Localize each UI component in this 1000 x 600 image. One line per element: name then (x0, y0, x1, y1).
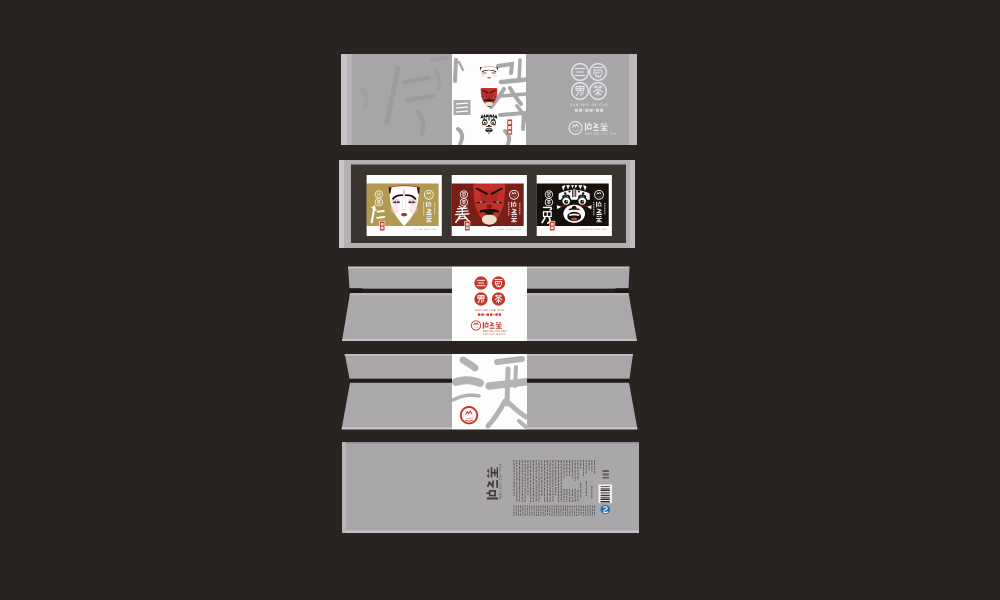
svg-text:SAN GUO MASKS: SAN GUO MASKS (483, 333, 506, 336)
svg-text:WEI ZHI CUI TEA: WEI ZHI CUI TEA (499, 463, 503, 499)
svg-text:ZHANG FEI FACE TEA: ZHANG FEI FACE TEA (580, 228, 607, 231)
svg-text:LIU BEI FACE TEA: LIU BEI FACE TEA (414, 228, 436, 231)
svg-text:SAN SHU JIE CHA: SAN SHU JIE CHA (475, 308, 504, 312)
svg-text:SAN SHU JIE CHA: SAN SHU JIE CHA (570, 103, 608, 107)
svg-text:GUAN YU FACE TEA: GUAN YU FACE TEA (497, 228, 522, 231)
svg-text:WEI ZHI CUI TEA: WEI ZHI CUI TEA (585, 132, 617, 136)
